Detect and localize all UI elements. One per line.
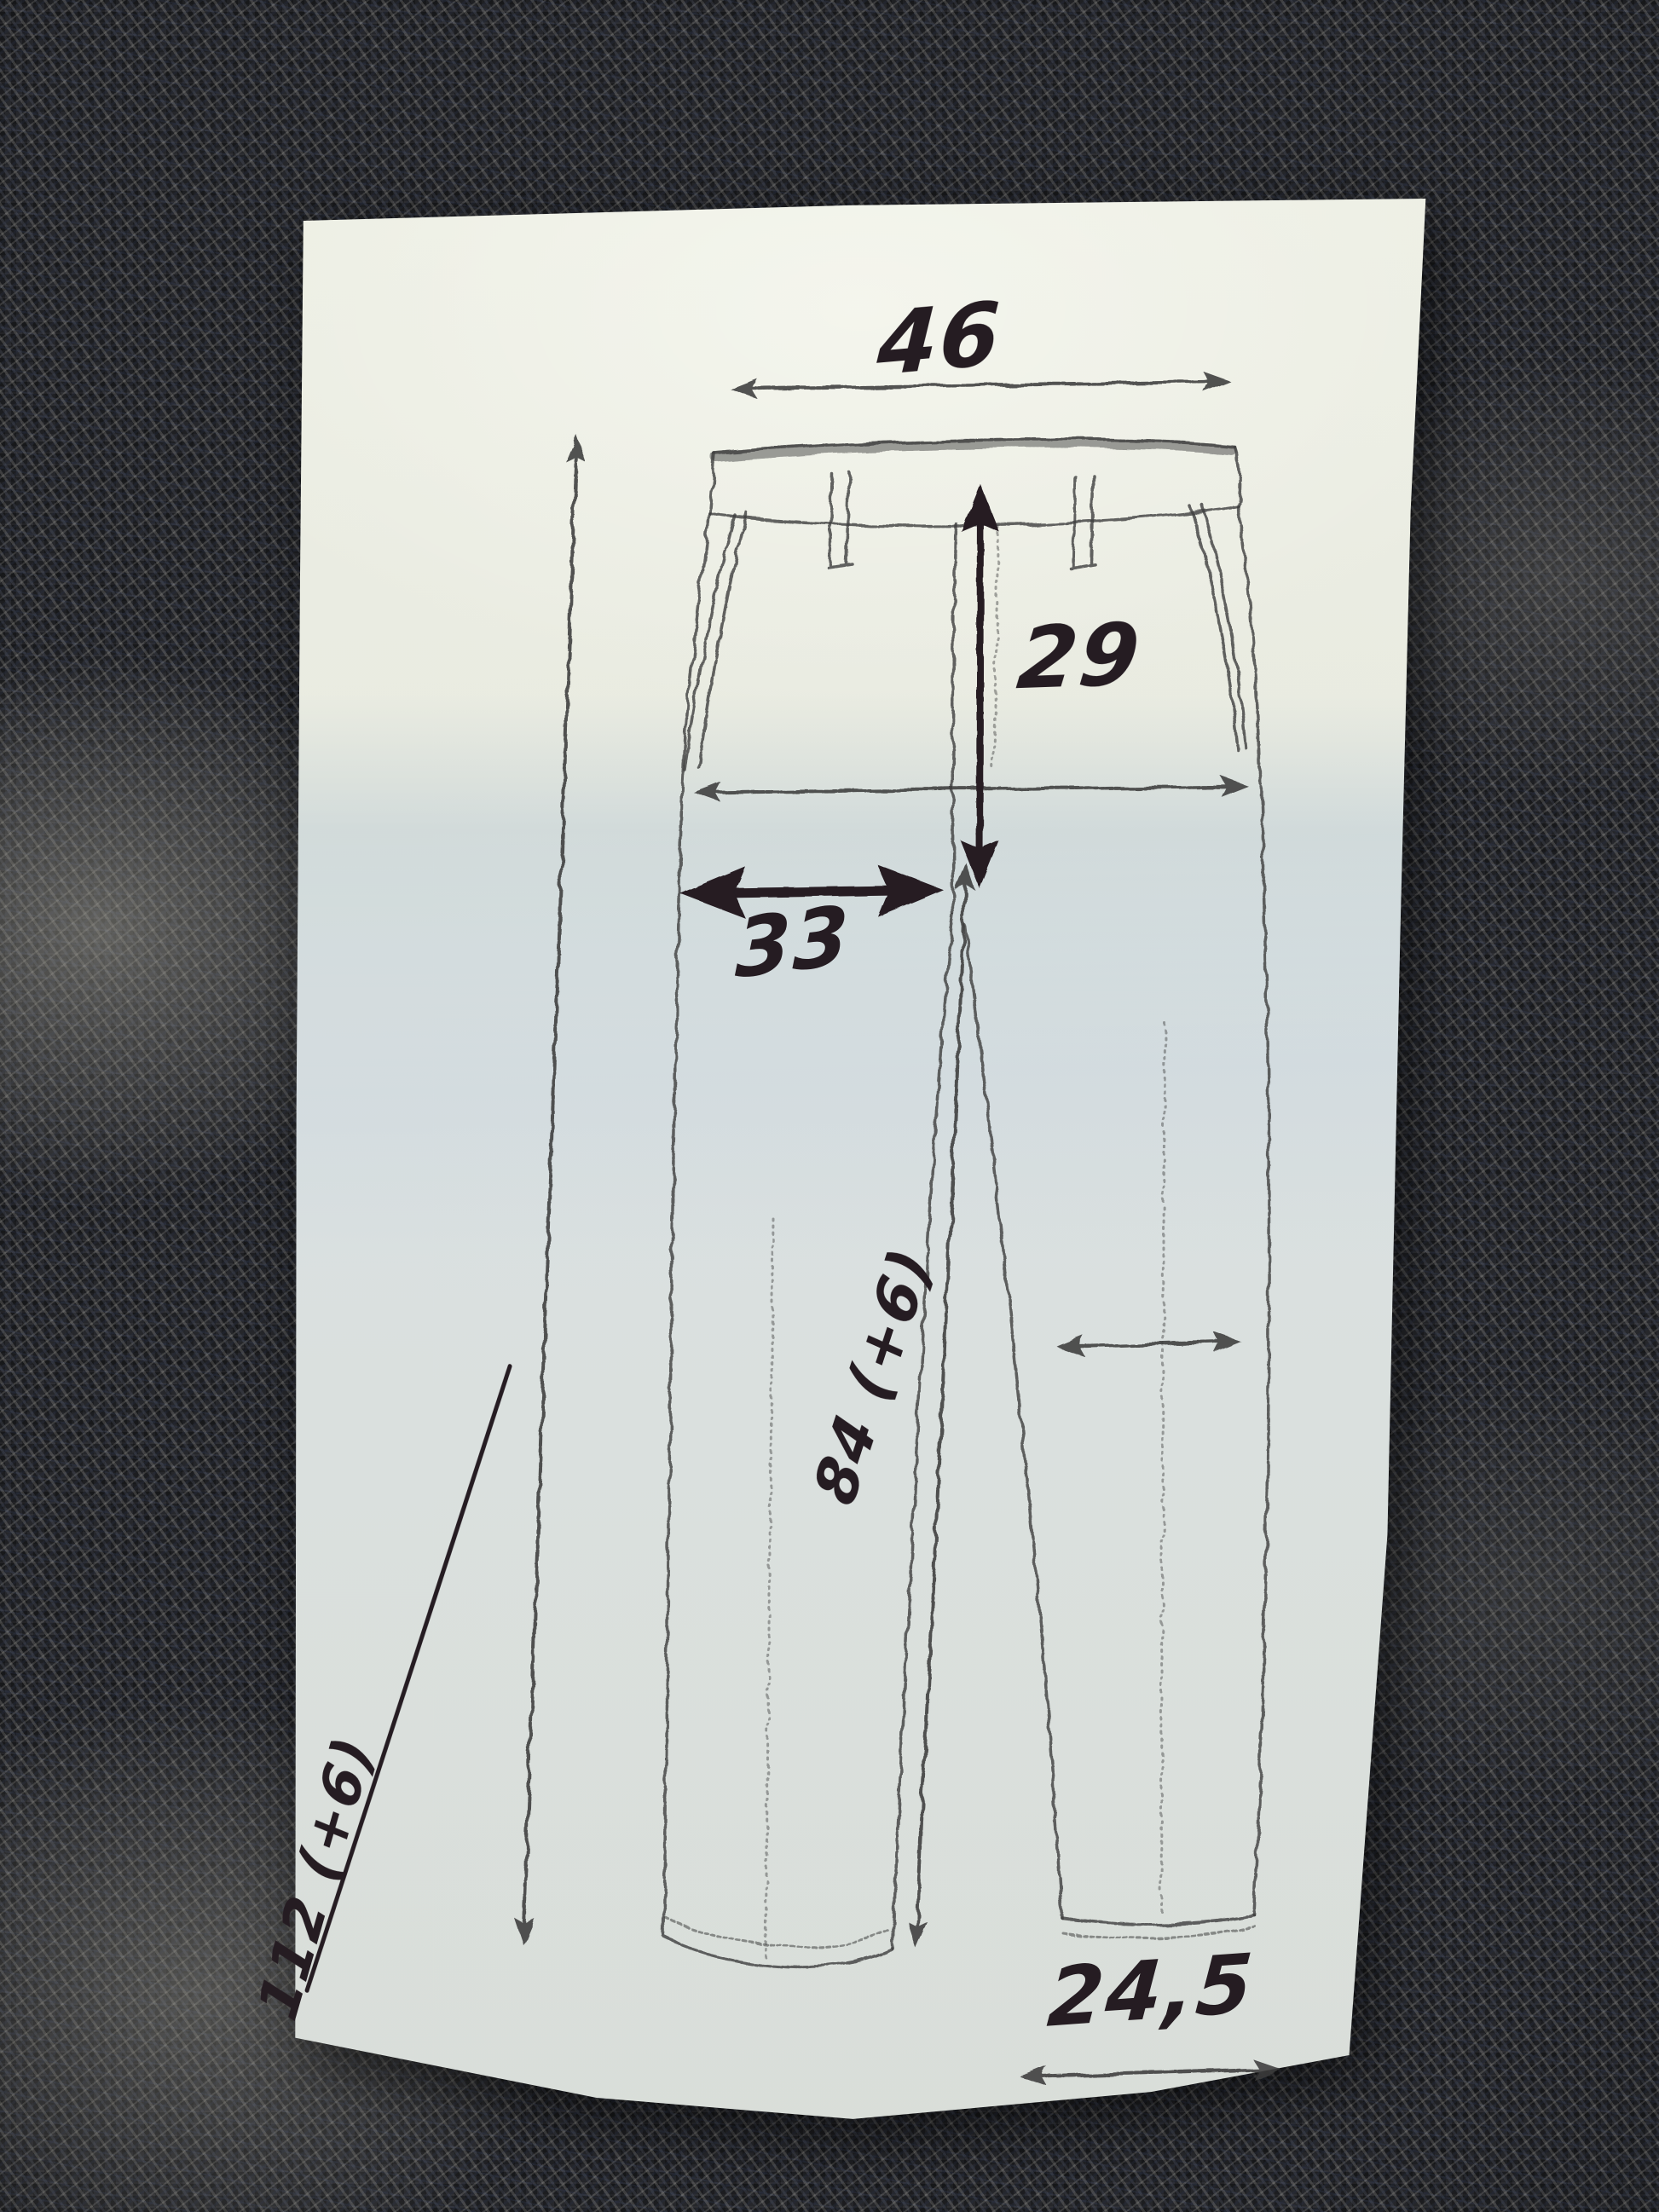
photo: 46 29 33 112 (+6) 84 (+6) 24,5 — [0, 0, 1659, 2212]
photo-vignette — [0, 0, 1659, 2212]
